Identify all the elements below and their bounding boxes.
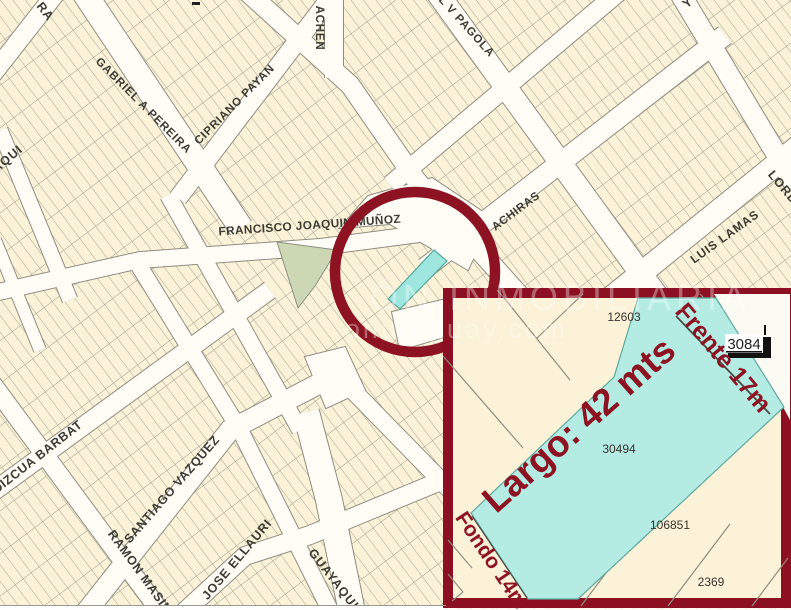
svg-text:30494: 30494 (602, 442, 636, 456)
svg-text:106851: 106851 (650, 518, 690, 532)
svg-text:2369: 2369 (698, 575, 725, 589)
svg-text:onuruguay.com: onuruguay.com (345, 314, 568, 344)
svg-text:ÓN INMOBILIARIA: ÓN INMOBILIARIA (370, 277, 751, 318)
svg-text:ACHEN: ACHEN (313, 6, 325, 51)
